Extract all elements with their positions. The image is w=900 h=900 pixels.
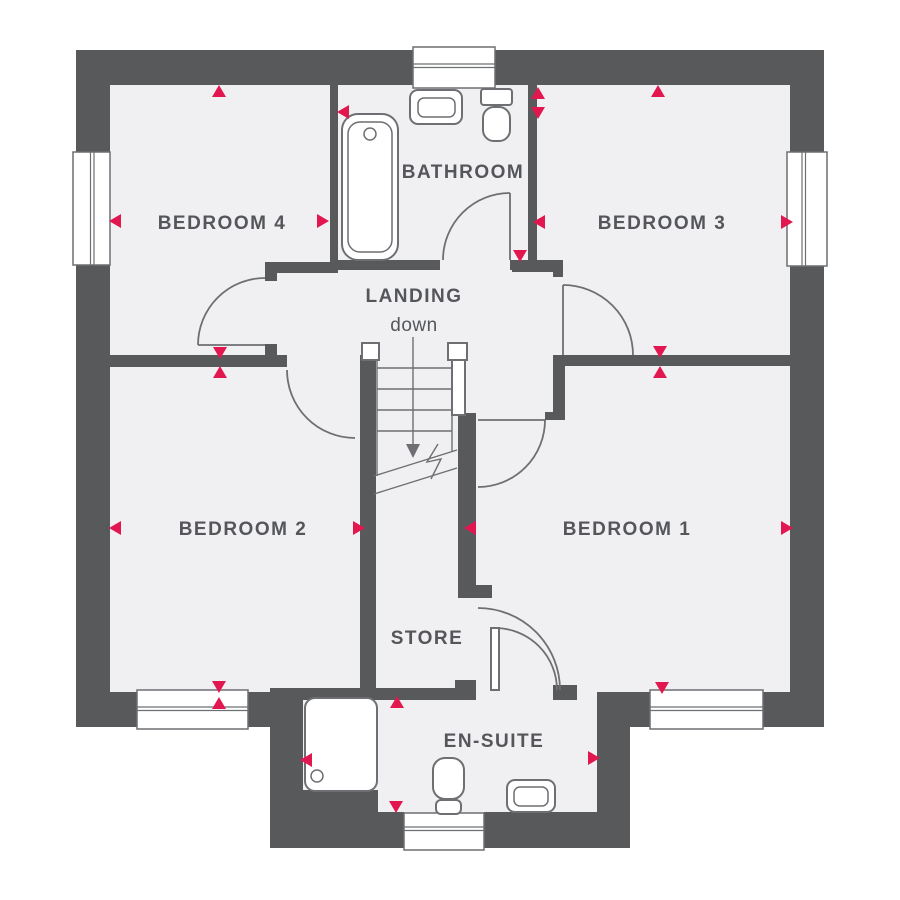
stairs-direction-label: down — [390, 315, 437, 336]
newel-post-right — [448, 343, 467, 360]
room-label-store: STORE — [391, 628, 464, 649]
window-bathroom-top — [413, 47, 495, 88]
bathtub-icon — [342, 114, 398, 260]
room-label-bedroom-4: BEDROOM 4 — [158, 213, 287, 234]
ensuite-washbasin-icon — [507, 780, 555, 812]
window-bedroom2-bottom — [137, 690, 248, 729]
floorplan-canvas: BEDROOM 4 BATHROOM BEDROOM 3 LANDING dow… — [0, 0, 900, 900]
window-ensuite-bottom — [404, 813, 484, 850]
floorplan-page: BEDROOM 4 BATHROOM BEDROOM 3 LANDING dow… — [0, 0, 900, 900]
bathroom-washbasin-icon — [410, 90, 462, 124]
room-label-bedroom-3: BEDROOM 3 — [598, 213, 727, 234]
room-label-bedroom-2: BEDROOM 2 — [179, 519, 308, 540]
room-label-bathroom: BATHROOM — [402, 162, 524, 183]
ensuite-toilet-icon — [433, 758, 464, 814]
window-bedroom4-left — [73, 152, 110, 265]
room-label-landing: LANDING — [365, 286, 462, 307]
room-label-bedroom-1: BEDROOM 1 — [563, 519, 692, 540]
newel-post-left — [362, 343, 379, 360]
shower-tray-icon — [305, 698, 377, 791]
window-bedroom3-right — [787, 152, 827, 266]
room-label-en-suite: EN-SUITE — [444, 731, 545, 752]
stair-rail — [452, 360, 465, 415]
bathroom-toilet-icon — [481, 89, 512, 141]
window-bedroom1-bottom — [650, 690, 763, 729]
